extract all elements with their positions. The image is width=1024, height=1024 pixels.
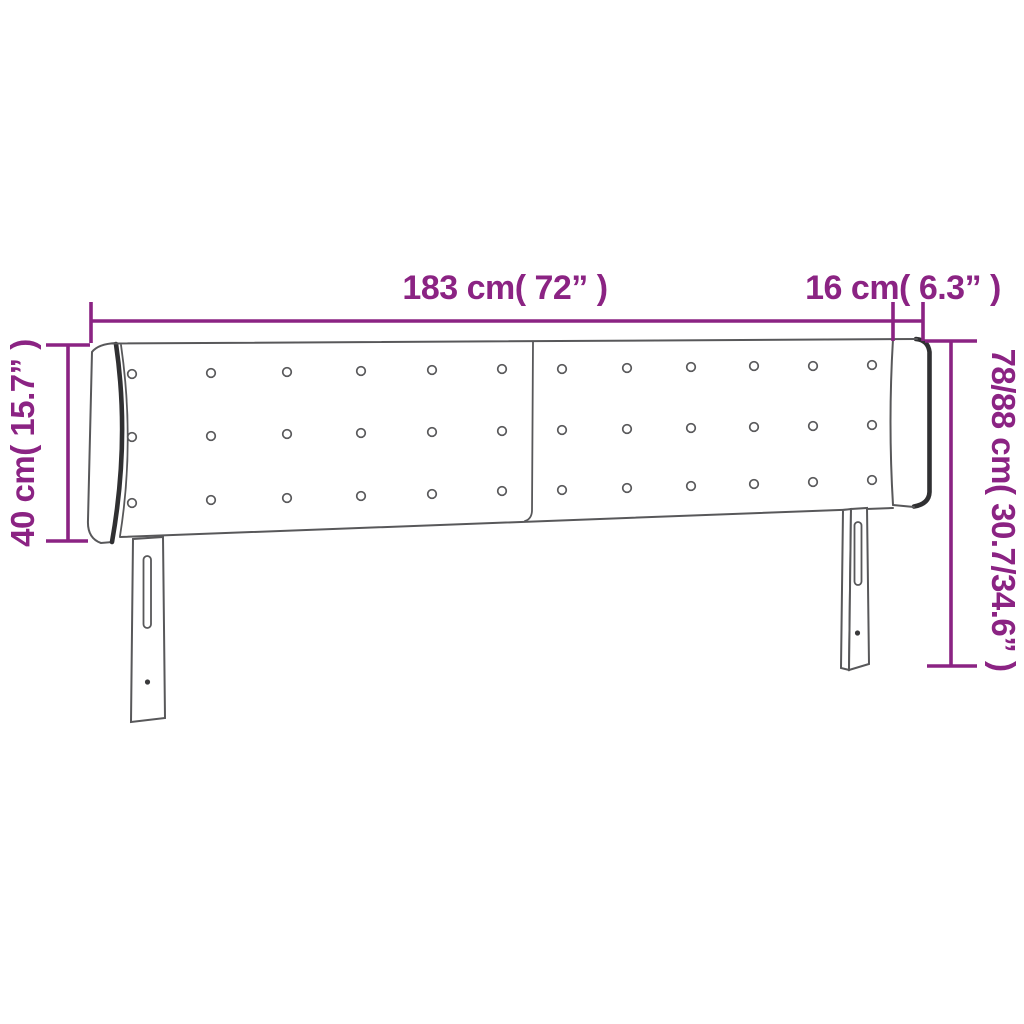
tufting-button [687,482,696,491]
panel-height-dimension-label: 40 cm( 15.7” ) [4,339,41,547]
tufting-button [207,369,216,378]
tufting-button [428,366,437,375]
tufting-button [809,422,818,431]
tufting-button [809,478,818,487]
right-height-dimension: 78/88 cm( 30.7/34.6” ) [925,341,1022,671]
tufting-button [428,428,437,437]
headboard-drawing [88,339,930,722]
tufting-button [357,367,366,376]
wing-width-dimension-label: 16 cm( 6.3” ) [805,269,1001,307]
tufting-button [498,487,507,496]
left-leg [131,537,165,722]
tufting-button [498,365,507,374]
tufting-button [128,370,137,379]
tufting-button [128,499,137,508]
width-dimension-label: 183 cm( 72” ) [402,269,607,307]
tufting-button [207,496,216,505]
right-leg-screw-hole [855,630,860,635]
tufting-button [868,476,877,485]
right-leg [841,508,869,670]
tufting-button [868,361,877,370]
tufting-button [283,368,292,377]
tufting-button [357,429,366,438]
diagram-canvas: 183 cm( 72” ) 16 cm( 6.3” ) 40 cm( 15.7”… [0,0,1024,1024]
tufting-button [283,494,292,503]
tufting-button [558,426,567,435]
tufting-button [558,486,567,495]
tufting-button [428,490,437,499]
tufting-button [207,432,216,441]
tufting-button [498,427,507,436]
right-wing [891,339,931,507]
tufting-button [623,484,632,493]
tufting-button [750,480,759,489]
left-leg-slot [144,556,152,628]
tufting-button [283,430,292,439]
tufting-button [128,433,137,442]
tufting-button [687,424,696,433]
tufting-button [623,364,632,373]
tufting-button [687,363,696,372]
tufting-button [357,492,366,501]
headboard-dimension-diagram: 183 cm( 72” ) 16 cm( 6.3” ) 40 cm( 15.7”… [0,0,1024,1024]
tufting-button [750,362,759,371]
total-height-dimension-label: 78/88 cm( 30.7/34.6” ) [985,349,1022,672]
tufting-button [558,365,567,374]
left-height-dimension: 40 cm( 15.7” ) [4,339,90,547]
top-width-dimension: 183 cm( 72” ) 16 cm( 6.3” ) [91,269,1001,343]
right-leg-slot [855,522,862,585]
tufting-button [623,425,632,434]
left-leg-screw-hole [145,679,150,684]
tufting-button [750,423,759,432]
tufting-button [868,421,877,430]
tufting-button [809,362,818,371]
